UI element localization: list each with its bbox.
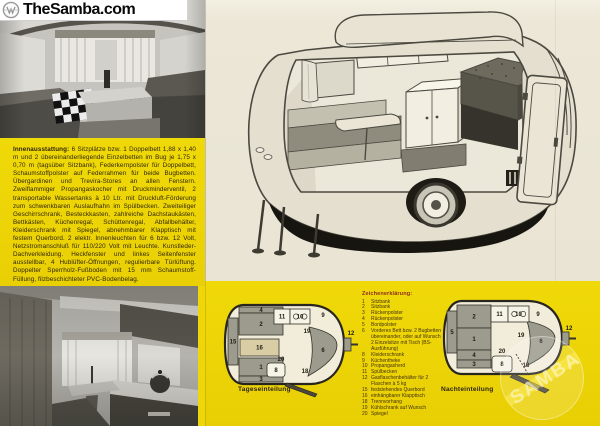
day-floorplan: 61542161311108919122018	[217, 300, 362, 400]
svg-text:11: 11	[279, 315, 286, 321]
thesamba-banner-text: TheSamba.com	[23, 1, 135, 19]
svg-text:18: 18	[523, 363, 530, 369]
svg-text:18: 18	[302, 369, 309, 375]
svg-text:20: 20	[499, 349, 506, 355]
svg-text:10: 10	[515, 312, 522, 318]
legend-item: 6Vorderes Bett bzw. 2 Bugbetten übereina…	[362, 329, 443, 353]
interior-photo-kitchen	[0, 286, 198, 426]
thesamba-banner[interactable]: TheSamba.com	[0, 0, 187, 21]
legend-item: 20Spiegel	[362, 412, 443, 418]
description-body: 6 Sitzplätze bzw. 1 Doppelbett 1,88 x 1,…	[13, 146, 196, 283]
night-floorplan-caption: Nachteinteilung	[441, 386, 493, 393]
svg-text:16: 16	[256, 346, 263, 352]
day-floorplan-caption: Tageseinteilung	[238, 386, 291, 393]
svg-text:10: 10	[297, 315, 304, 321]
svg-text:12: 12	[348, 331, 355, 337]
svg-text:15: 15	[230, 340, 237, 346]
description-heading: Innenausstattung:	[13, 146, 69, 153]
description-text: Innenausstattung: 6 Sitzplätze bzw. 1 Do…	[13, 146, 196, 284]
left-column: Innenausstattung: 6 Sitzplätze bzw. 1 Do…	[0, 0, 205, 426]
svg-text:20: 20	[278, 357, 285, 363]
legend-list: 1Sitzbank2Sitzbank3Rückenpolster4Rückenp…	[362, 300, 443, 418]
legend-heading: Zeichenerklärung:	[362, 291, 443, 297]
illustration-area	[205, 0, 600, 281]
caravan-cutaway-illustration	[206, 0, 600, 281]
legend: Zeichenerklärung: 1Sitzbank2Sitzbank3Rüc…	[362, 291, 443, 418]
svg-text:19: 19	[304, 329, 311, 335]
svg-text:19: 19	[518, 333, 525, 339]
svg-text:12: 12	[566, 326, 573, 332]
svg-text:11: 11	[496, 312, 503, 318]
description-box: Innenausstattung: 6 Sitzplätze bzw. 1 Do…	[0, 138, 205, 286]
brochure-scan-page: Innenausstattung: 6 Sitzplätze bzw. 1 Do…	[0, 0, 600, 426]
thesamba-logo-icon	[2, 1, 20, 19]
